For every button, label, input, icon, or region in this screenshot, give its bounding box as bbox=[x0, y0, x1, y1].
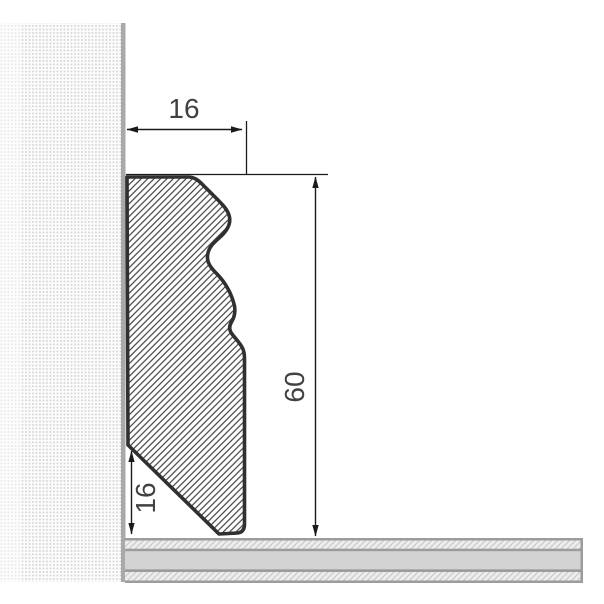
arrowhead-left-icon bbox=[127, 126, 139, 132]
arrowhead-up-icon bbox=[312, 177, 318, 189]
wall-surface-line bbox=[121, 23, 126, 582]
dimension-width-label: 16 bbox=[168, 93, 199, 124]
floor-underlay-band bbox=[125, 551, 581, 569]
skirting-profile-diagram: 16 60 16 bbox=[0, 0, 604, 604]
dimension-width: 16 bbox=[127, 93, 243, 133]
wall bbox=[0, 23, 126, 582]
wall-texture-faint bbox=[0, 23, 22, 582]
diagram-canvas: 16 60 16 bbox=[0, 0, 604, 604]
floor bbox=[125, 538, 583, 583]
wall-texture bbox=[22, 23, 121, 582]
floor-screed-top bbox=[125, 541, 581, 549]
arrowhead-down-icon bbox=[128, 523, 134, 535]
arrowhead-down-icon bbox=[312, 525, 318, 537]
dimension-bevel-label: 16 bbox=[130, 482, 161, 513]
arrowhead-right-icon bbox=[231, 126, 243, 132]
dimension-height: 60 bbox=[279, 177, 319, 537]
floor-screed-bottom bbox=[125, 572, 581, 581]
skirting-profile bbox=[127, 177, 245, 534]
dimension-height-label: 60 bbox=[279, 371, 310, 402]
